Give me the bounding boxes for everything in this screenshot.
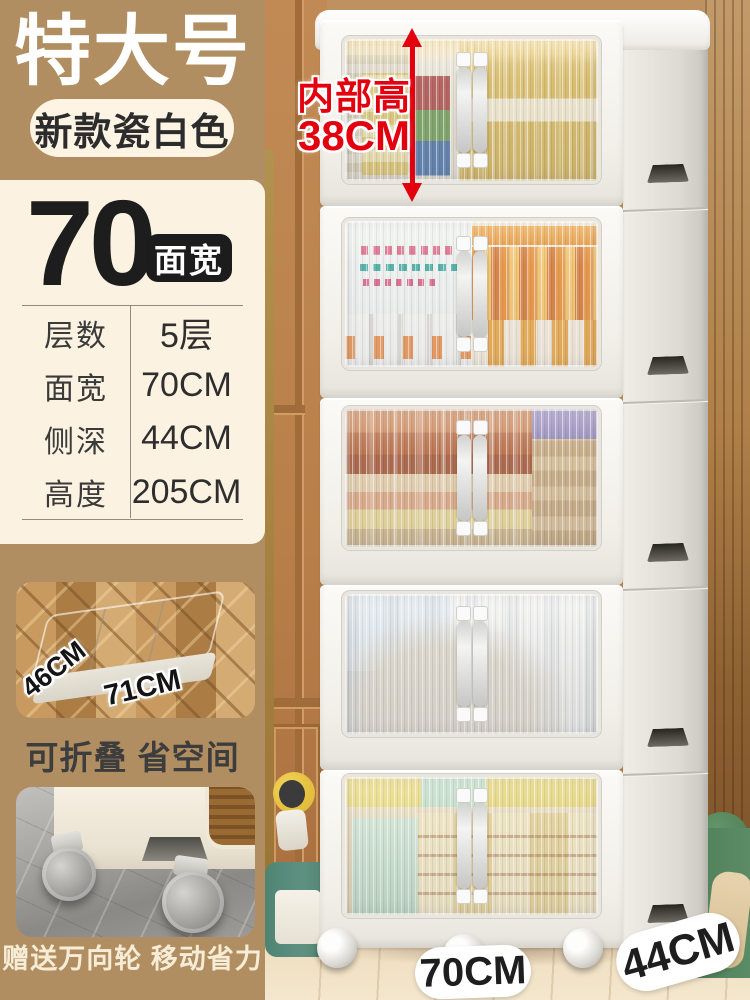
fold-caption: 可折叠 省空间 [0,731,265,779]
handle-grip [473,67,487,153]
spec-row-layers: 层数 5层 [22,306,243,359]
door-latch [473,52,488,67]
width-number: 70 [26,182,152,304]
wheel-photo [16,787,255,937]
door-latch [473,606,488,621]
spec-value: 205CM [130,473,243,512]
product-image: 特大号 新款瓷白色 70 面宽 层数 5层 面宽 70CM 侧深 44CM [0,0,750,1000]
door-latch [456,521,471,536]
room-photo: 内部高 38CM 70CM 44CM [265,0,750,1000]
spec-row-width: 面宽 70CM [22,359,243,412]
handle-grip [457,803,471,889]
height-arrow-top [402,28,422,47]
handle-grip [457,435,471,521]
caster-wheel [317,928,357,968]
door-handle [454,788,490,904]
spec-value: 44CM [130,419,243,458]
door-handle [454,236,490,352]
spec-table: 层数 5层 面宽 70CM 侧深 44CM 高度 205CM [22,305,243,520]
door-latch [456,420,471,435]
cabinet-side-panel [623,35,708,946]
door-handle [454,420,490,536]
tier-4 [320,585,623,770]
caster-wheel [563,928,603,968]
door-latch [456,788,471,803]
door-latch [473,707,488,722]
height-arrow-bottom [402,183,422,202]
tier-3-door [342,406,601,550]
color-badge: 新款瓷白色 [30,99,234,157]
door-latch [473,521,488,536]
handle-grip [457,621,471,707]
door-latch [473,153,488,168]
caster-wheel [162,871,224,933]
spec-label: 面宽 [22,364,130,408]
side-seam [623,207,708,212]
tier-2 [320,206,623,398]
spec-label: 侧深 [22,417,130,461]
tier-4-door [342,591,601,737]
door-handle [454,52,490,168]
spec-label: 高度 [22,470,130,514]
size-badge: 特大号 [0,8,265,97]
handle-grip [473,621,487,707]
door-latch [473,420,488,435]
side-seam [623,399,708,404]
door-latch [456,707,471,722]
side-handle-cutout [647,728,689,747]
side-seam [623,586,708,591]
inner-height-annotation: 内部高 38CM [279,78,429,157]
info-panel: 特大号 新款瓷白色 70 面宽 层数 5层 面宽 70CM 侧深 44CM [0,0,265,1000]
side-handle-cutout [647,164,689,183]
spec-value: 5层 [130,308,243,357]
width-dimension-pill: 70CM [414,944,532,1000]
side-seam [623,771,708,776]
handle-grip [457,251,471,337]
tier-2-door [342,218,601,370]
handle-grip [473,435,487,521]
door-handle [454,606,490,722]
door-latch [473,889,488,904]
spec-row-depth: 侧深 44CM [22,412,243,465]
side-handle-cutout [647,356,689,375]
door-latch [456,337,471,352]
table-divider [130,305,131,518]
handle-grip [473,803,487,889]
handle-grip [473,251,487,337]
spec-card: 70 面宽 层数 5层 面宽 70CM 侧深 44CM 高度 205CM [0,180,265,544]
wheel-caption: 赠送万向轮 移动省力 [0,937,265,976]
folded-box-photo: 46CM 71CM [16,582,255,718]
door-latch [473,788,488,803]
spec-label: 层数 [22,311,130,355]
door-latch [456,236,471,251]
handle-grip [457,67,471,153]
spec-value: 70CM [130,366,243,405]
door-latch [473,236,488,251]
annotation-value: 38CM [279,115,429,157]
door-latch [456,606,471,621]
door-latch [456,153,471,168]
spec-row-height: 高度 205CM [22,466,243,519]
width-unit-badge: 面宽 [146,234,232,282]
door-latch [473,337,488,352]
rattan-basket [205,787,255,849]
tier-3 [320,398,623,585]
tier-5 [320,770,623,948]
caster-wheel [42,847,96,901]
tier-5-door [342,774,601,918]
annotation-text: 内部高 [279,78,429,115]
door-latch [456,52,471,67]
door-latch [456,889,471,904]
side-handle-cutout [647,543,689,562]
